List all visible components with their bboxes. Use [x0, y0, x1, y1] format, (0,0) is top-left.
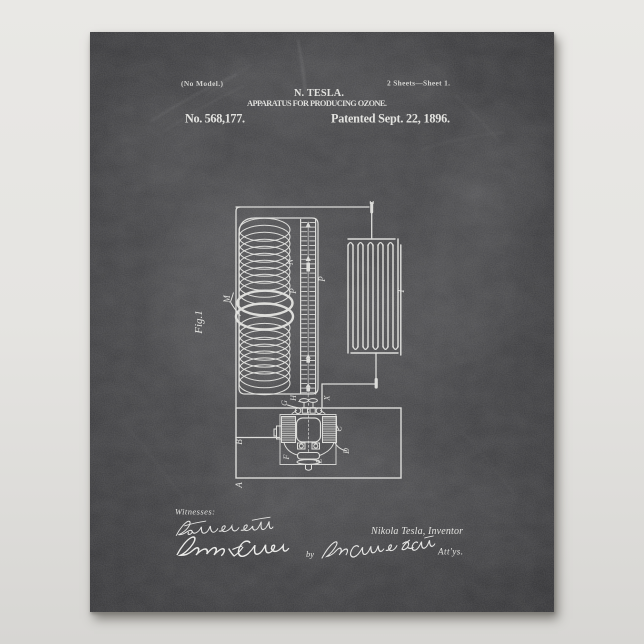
svg-text:Witnesses:: Witnesses:: [175, 507, 215, 517]
svg-text:2 Sheets—Sheet 1.: 2 Sheets—Sheet 1.: [387, 79, 450, 88]
svg-text:E: E: [315, 458, 324, 464]
svg-text:No. 568,177.: No. 568,177.: [185, 111, 245, 125]
svg-text:P: P: [288, 288, 298, 295]
svg-text:N. TESLA.: N. TESLA.: [294, 88, 345, 99]
svg-text:D: D: [342, 448, 351, 455]
svg-text:F: F: [282, 454, 291, 460]
svg-text:G: G: [280, 400, 289, 406]
svg-text:B: B: [234, 439, 244, 445]
svg-text:by: by: [306, 549, 314, 559]
svg-text:C: C: [335, 426, 344, 432]
svg-text:Patented Sept. 22, 1896.: Patented Sept. 22, 1896.: [331, 111, 450, 125]
svg-text:Nikola Tesla, Inventor: Nikola Tesla, Inventor: [370, 526, 463, 537]
svg-text:N: N: [285, 258, 295, 266]
svg-text:Att'ys.: Att'ys.: [437, 547, 463, 557]
svg-text:(No Model.): (No Model.): [181, 79, 224, 88]
svg-text:APPARATUS FOR PRODUCING OZONE.: APPARATUS FOR PRODUCING OZONE.: [247, 99, 387, 108]
svg-text:A: A: [234, 482, 244, 489]
svg-text:P: P: [317, 276, 327, 283]
svg-text:Fig.1: Fig.1: [193, 310, 205, 335]
